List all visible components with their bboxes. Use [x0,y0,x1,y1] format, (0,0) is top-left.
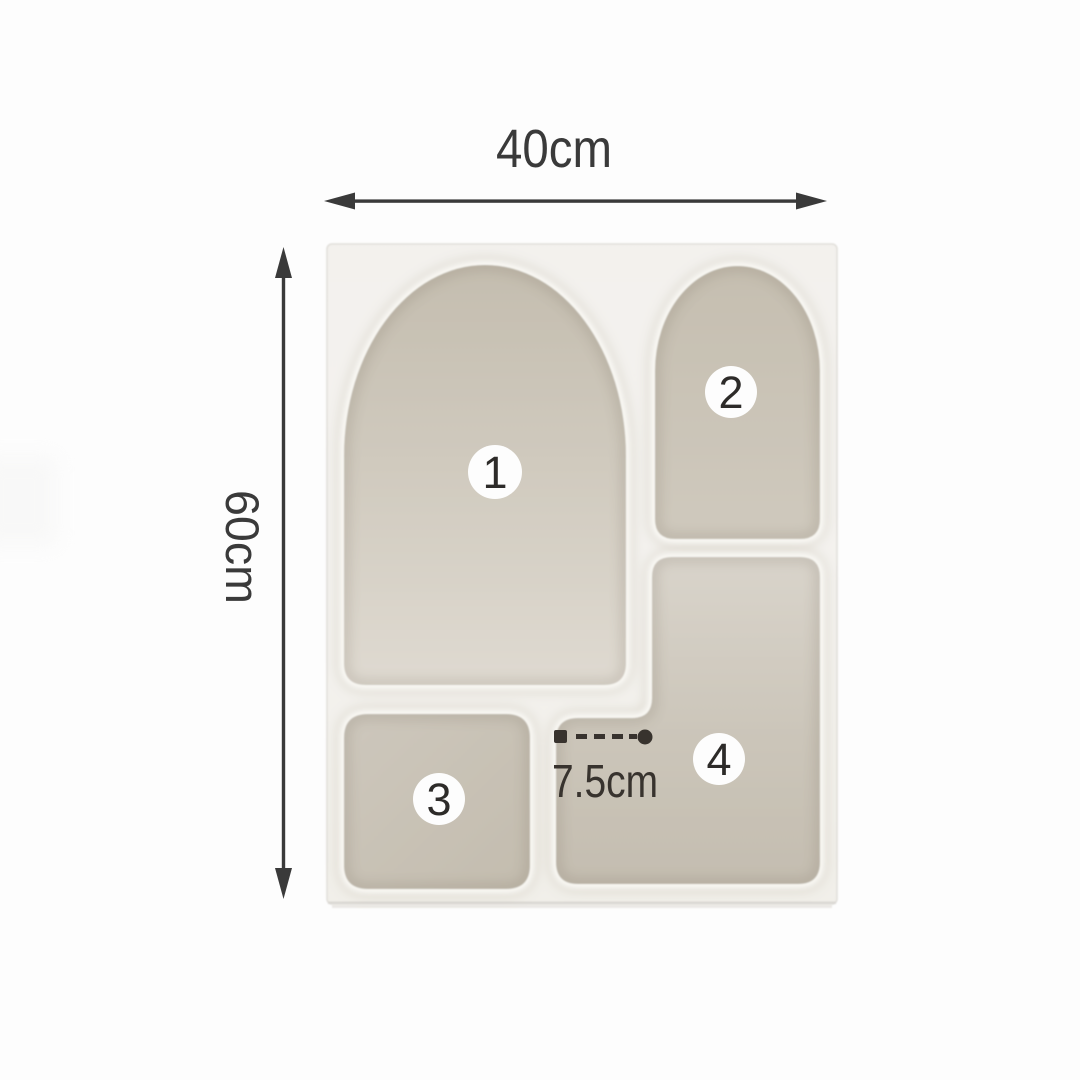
svg-text:3: 3 [426,774,451,825]
svg-text:40cm: 40cm [496,119,612,179]
svg-text:1: 1 [482,447,507,498]
svg-text:4: 4 [706,734,731,785]
svg-text:60cm: 60cm [216,490,269,604]
svg-text:2: 2 [718,367,743,418]
svg-text:7.5cm: 7.5cm [552,755,658,807]
